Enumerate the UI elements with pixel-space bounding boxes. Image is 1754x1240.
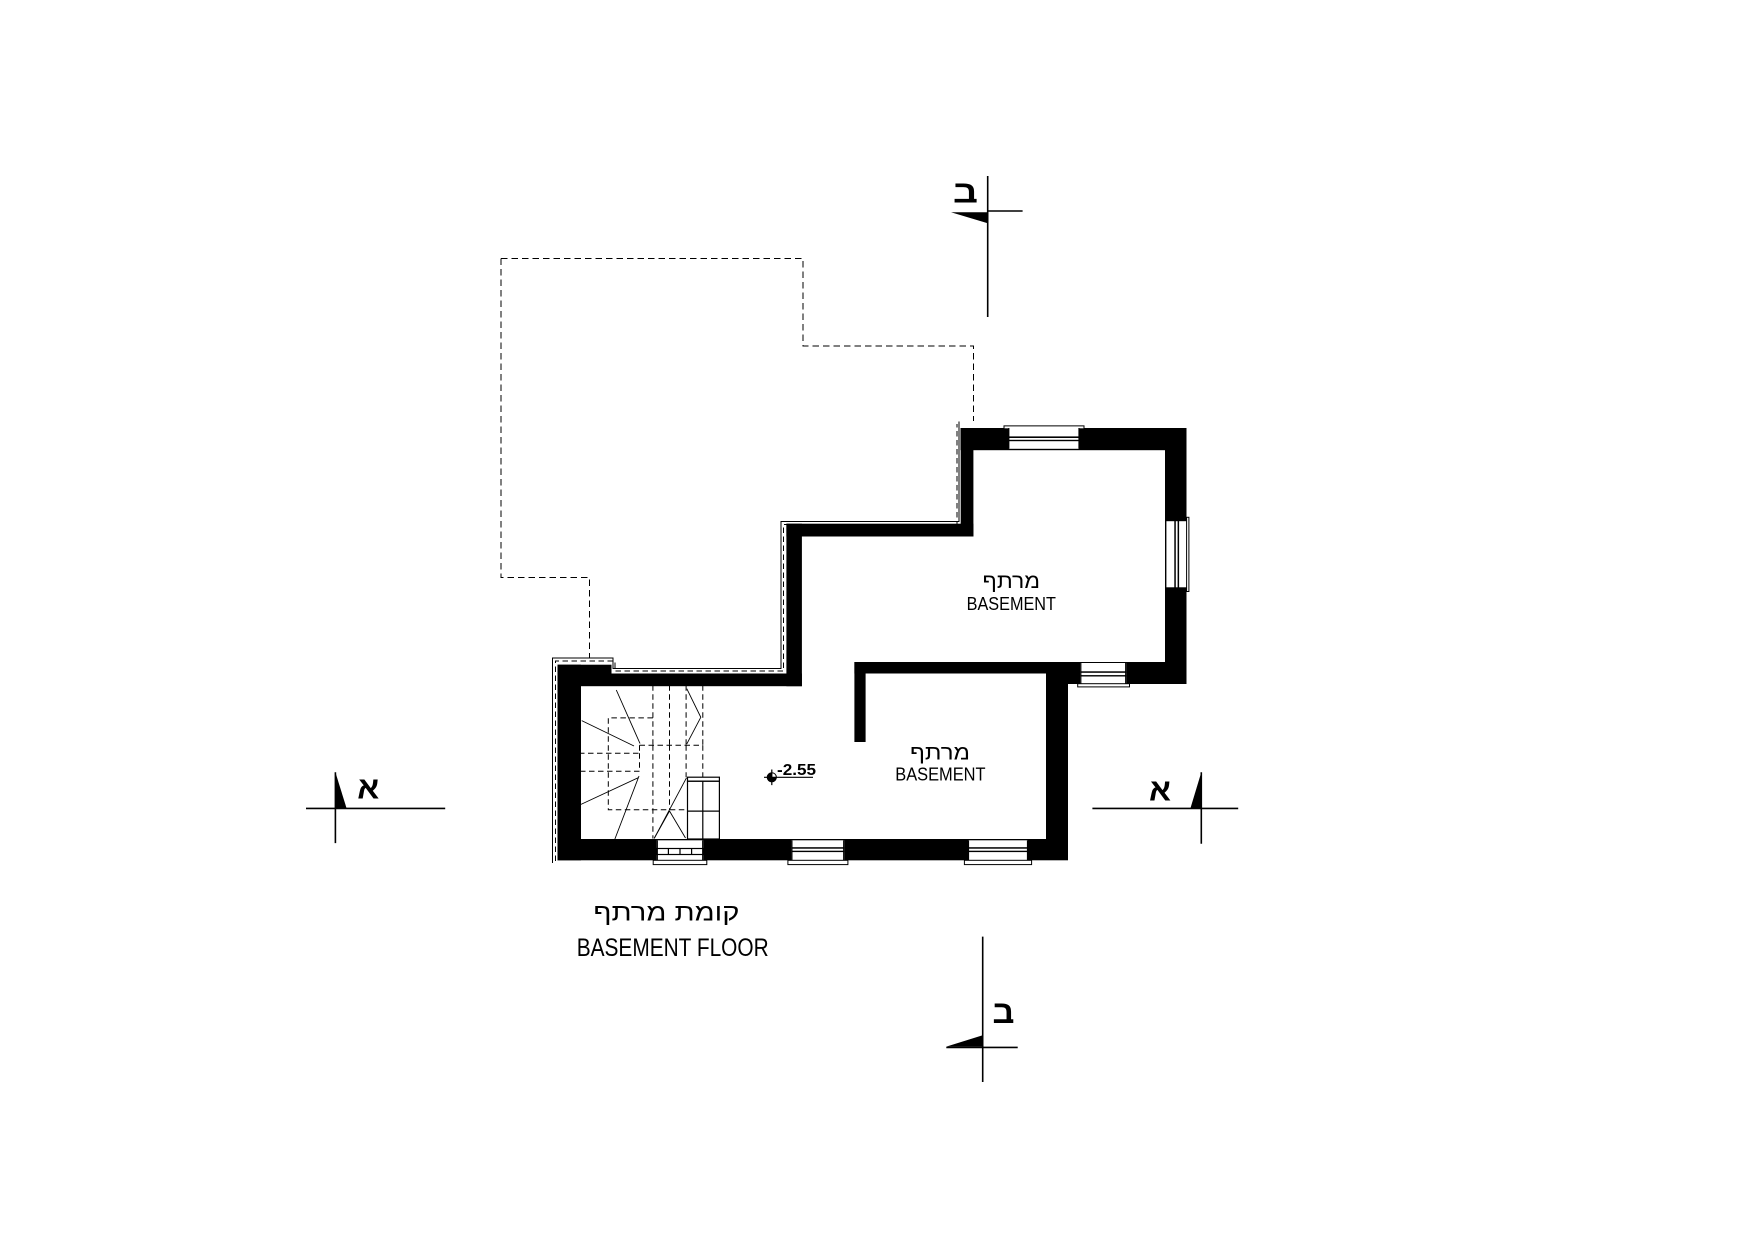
svg-text:ב: ב [993,994,1015,1030]
svg-text:מרתף: מרתף [910,742,970,765]
svg-text:-2.55: -2.55 [777,762,816,779]
svg-text:BASEMENT: BASEMENT [895,764,985,785]
svg-text:א: א [357,771,379,806]
svg-text:ב: ב [953,174,978,209]
svg-text:BASEMENT: BASEMENT [967,593,1056,614]
svg-text:מרתף: מרתף [983,570,1041,593]
svg-text:א: א [1149,772,1171,807]
svg-text:BASEMENT FLOOR: BASEMENT FLOOR [577,934,769,962]
svg-text:קומת מרתף: קומת מרתף [593,899,739,926]
